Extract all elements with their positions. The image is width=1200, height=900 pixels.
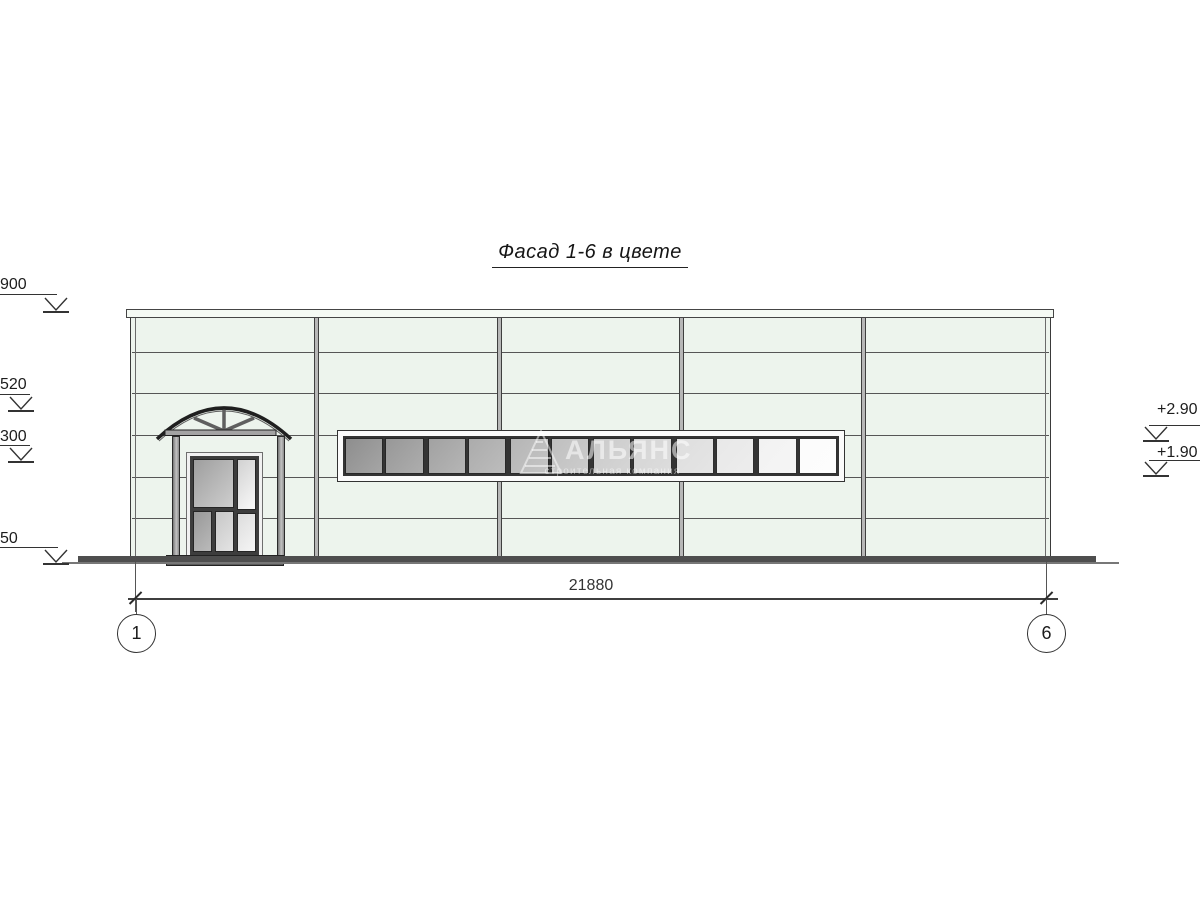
elevation-arrow-icon (41, 549, 71, 566)
elevation-arrow-icon (41, 297, 71, 314)
door-pane (215, 511, 234, 552)
elevation-leader (0, 294, 57, 295)
axis-label: 6 (1041, 623, 1051, 644)
window-panes (343, 436, 839, 476)
wall-edge-line (135, 318, 136, 556)
window-pane (428, 438, 466, 474)
window-pane (468, 438, 506, 474)
window-pane (345, 438, 383, 474)
parapet-band (126, 309, 1054, 318)
window-pane (716, 438, 754, 474)
axis-bubble-6: 6 (1027, 614, 1066, 653)
elevation-mark-label: 900 (0, 276, 27, 294)
elevation-mark-label: 50 (0, 530, 18, 548)
window-pane (758, 438, 796, 474)
elevation-arrow-icon (1141, 461, 1171, 478)
canopy-post (172, 436, 180, 556)
window-pane (799, 438, 837, 474)
wall-panel-line (132, 518, 1049, 519)
canopy-post (277, 436, 285, 556)
axis-bubble-1: 1 (117, 614, 156, 653)
elevation-arrow-icon (6, 447, 36, 464)
wall-mullion (861, 318, 866, 556)
facade-drawing-sheet: Фасад 1-6 в цвете АЛЬЯНС строительная ко… (0, 0, 1200, 900)
elevation-mark-label: 520 (0, 376, 27, 394)
door-pane (193, 459, 234, 508)
axis-connector (136, 599, 137, 615)
dimension-line (128, 598, 1058, 600)
window-pane (551, 438, 589, 474)
window-pane (593, 438, 631, 474)
elevation-arrow-icon (1141, 426, 1171, 443)
axis-label: 1 (131, 623, 141, 644)
elevation-leader (0, 394, 30, 395)
window-pane (510, 438, 548, 474)
canopy-truss-diagonal (224, 418, 254, 431)
wall-mullion (314, 318, 319, 556)
canopy-truss-diagonal (194, 418, 224, 431)
wall-panel-line (132, 352, 1049, 353)
window-pane (676, 438, 714, 474)
entrance-door (190, 456, 259, 556)
wall-edge-line (1045, 318, 1046, 556)
elevation-arrow-icon (6, 396, 36, 413)
elevation-mark-label: 300 (0, 428, 27, 446)
elevation-leader (0, 547, 58, 548)
window-pane (633, 438, 671, 474)
elevation-leader (0, 445, 30, 446)
canopy-beam (165, 430, 276, 436)
door-sidelight-pane (237, 459, 256, 510)
elevation-mark-label: +2.90 (1157, 401, 1197, 419)
wall-panel-line (132, 393, 1049, 394)
window-pane (385, 438, 423, 474)
drawing-title: Фасад 1-6 в цвете (420, 241, 760, 268)
door-sidelight-pane (237, 513, 256, 552)
dimension-label: 21880 (521, 577, 661, 595)
door-pane (193, 511, 212, 552)
axis-connector (1046, 599, 1047, 615)
drawing-title-text: Фасад 1-6 в цвете (492, 241, 688, 268)
ground-line (62, 562, 1119, 564)
